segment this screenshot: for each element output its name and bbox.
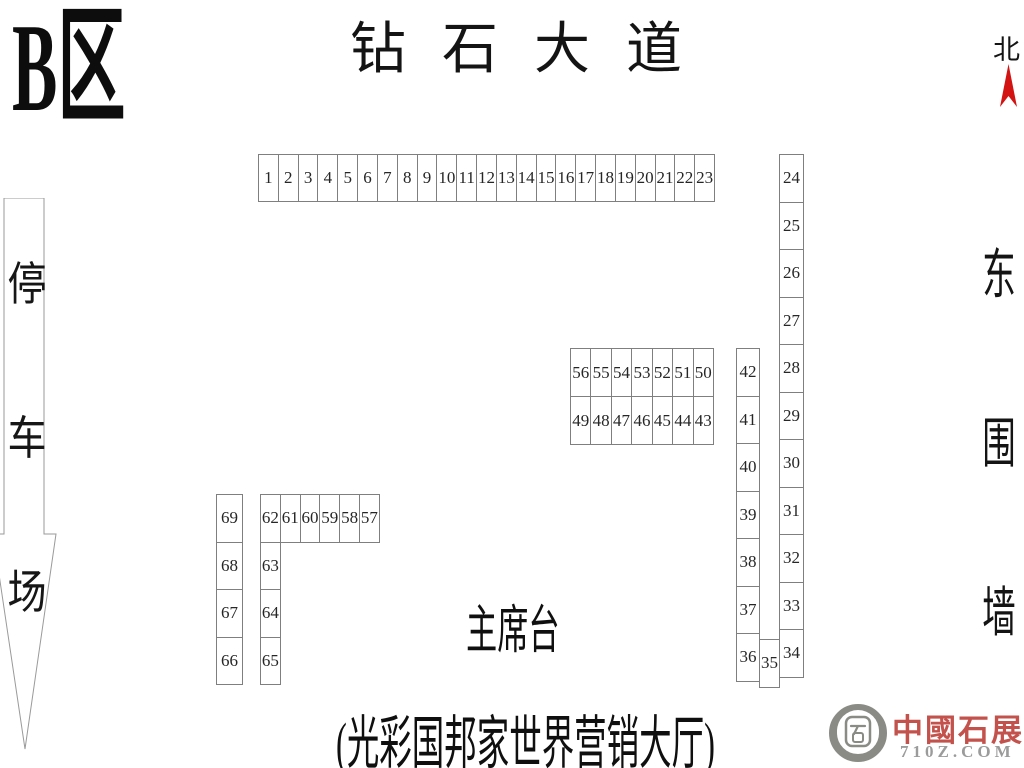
booth-cell-68: 68 — [216, 542, 243, 591]
booth-cell-48: 48 — [590, 396, 611, 445]
booth-row-top: 1234567891011121314151617181920212223 — [258, 154, 715, 202]
parking-char: 车 — [6, 402, 49, 468]
east-wall-char: 东 — [982, 230, 1015, 309]
booth-col-left-inner: 636465 — [260, 542, 281, 686]
booth-cell-56: 56 — [570, 348, 591, 397]
booth-col-right-inner: 42414039383736 — [736, 348, 760, 682]
stage-label: 主席台 — [466, 588, 560, 663]
booth-cell-37: 37 — [736, 586, 760, 635]
booth-cell-69: 69 — [216, 494, 243, 543]
booth-cell-33: 33 — [779, 582, 804, 631]
booth-cell-17: 17 — [575, 154, 596, 202]
booth-cell-21: 21 — [655, 154, 676, 202]
booth-cell-64: 64 — [260, 589, 281, 638]
booth-cell-58: 58 — [339, 494, 360, 543]
booth-cell-65: 65 — [260, 637, 281, 686]
booth-cell-34: 34 — [779, 629, 804, 678]
east-wall-char: 围 — [982, 399, 1015, 478]
booth-cell-41: 41 — [736, 396, 760, 445]
booth-cell-19: 19 — [615, 154, 636, 202]
booth-cell-51: 51 — [672, 348, 693, 397]
east-wall-label: 东 围 墙 — [972, 230, 1024, 647]
booth-cell-26: 26 — [779, 249, 804, 298]
booth-cell-35-group: 35 — [759, 639, 780, 688]
booth-cell-59: 59 — [319, 494, 340, 543]
booth-cell-13: 13 — [496, 154, 517, 202]
booth-cell-1: 1 — [258, 154, 279, 202]
east-wall-char: 墙 — [982, 568, 1015, 647]
parking-char: 场 — [6, 556, 49, 622]
booth-cell-39: 39 — [736, 491, 760, 540]
booth-cell-4: 4 — [317, 154, 338, 202]
booth-cell-11: 11 — [456, 154, 477, 202]
booth-cell-42: 42 — [736, 348, 760, 397]
booth-cell-23: 23 — [694, 154, 715, 202]
booth-row-left: 626160595857 — [260, 494, 380, 543]
zone-label: B区 — [12, 6, 125, 132]
booth-cell-44: 44 — [672, 396, 693, 445]
booth-cell-20: 20 — [635, 154, 656, 202]
stone-seal-icon — [826, 701, 890, 765]
venue-map: B区 钻石大道 北 东 围 墙 停 车 场 123456789101112131… — [0, 0, 1024, 768]
booth-cell-27: 27 — [779, 297, 804, 346]
booth-cell-29: 29 — [779, 392, 804, 441]
booth-row-mid-lower: 49484746454443 — [570, 396, 714, 445]
booth-cell-6: 6 — [357, 154, 378, 202]
booth-cell-18: 18 — [595, 154, 616, 202]
booth-col-right-outer: 2425262728293031323334 — [779, 154, 804, 678]
booth-cell-32: 32 — [779, 534, 804, 583]
booth-cell-10: 10 — [436, 154, 457, 202]
parking-lot-label: 停 车 场 — [2, 248, 52, 622]
booth-cell-43: 43 — [693, 396, 714, 445]
booth-cell-22: 22 — [674, 154, 695, 202]
booth-cell-15: 15 — [536, 154, 557, 202]
booth-cell-62: 62 — [260, 494, 281, 543]
hall-name-label: (光彩国邦家世界营销大厅) — [336, 696, 715, 768]
booth-cell-55: 55 — [590, 348, 611, 397]
booth-cell-3: 3 — [298, 154, 319, 202]
north-label: 北 — [993, 28, 1020, 67]
booth-cell-50: 50 — [693, 348, 714, 397]
booth-cell-61: 61 — [280, 494, 301, 543]
parking-char: 停 — [6, 248, 49, 314]
booth-cell-40: 40 — [736, 443, 760, 492]
booth-cell-30: 30 — [779, 439, 804, 488]
booth-cell-63: 63 — [260, 542, 281, 591]
booth-cell-31: 31 — [779, 487, 804, 536]
booth-cell-53: 53 — [631, 348, 652, 397]
booth-cell-16: 16 — [555, 154, 576, 202]
booth-cell-47: 47 — [611, 396, 632, 445]
booth-cell-38: 38 — [736, 538, 760, 587]
booth-cell-46: 46 — [631, 396, 652, 445]
booth-cell-60: 60 — [300, 494, 321, 543]
booth-cell-52: 52 — [652, 348, 673, 397]
booth-cell-36: 36 — [736, 633, 760, 682]
booth-cell-54: 54 — [611, 348, 632, 397]
booth-cell-12: 12 — [476, 154, 497, 202]
booth-cell-7: 7 — [377, 154, 398, 202]
booth-cell-66: 66 — [216, 637, 243, 686]
booth-col-left-outer: 69686766 — [216, 494, 243, 685]
booth-cell-25: 25 — [779, 202, 804, 251]
booth-cell-49: 49 — [570, 396, 591, 445]
booth-cell-35: 35 — [759, 639, 780, 688]
booth-row-mid-upper: 56555453525150 — [570, 348, 714, 397]
booth-cell-14: 14 — [516, 154, 537, 202]
booth-cell-9: 9 — [417, 154, 438, 202]
booth-cell-5: 5 — [337, 154, 358, 202]
booth-cell-2: 2 — [278, 154, 299, 202]
booth-cell-8: 8 — [397, 154, 418, 202]
street-name-label: 钻石大道 — [350, 4, 718, 85]
booth-cell-28: 28 — [779, 344, 804, 393]
booth-cell-67: 67 — [216, 589, 243, 638]
booth-cell-45: 45 — [652, 396, 673, 445]
booth-cell-57: 57 — [359, 494, 380, 543]
booth-cell-24: 24 — [779, 154, 804, 203]
logo-domain: 710Z.COM — [900, 742, 1015, 762]
north-arrow-icon — [1000, 64, 1017, 108]
